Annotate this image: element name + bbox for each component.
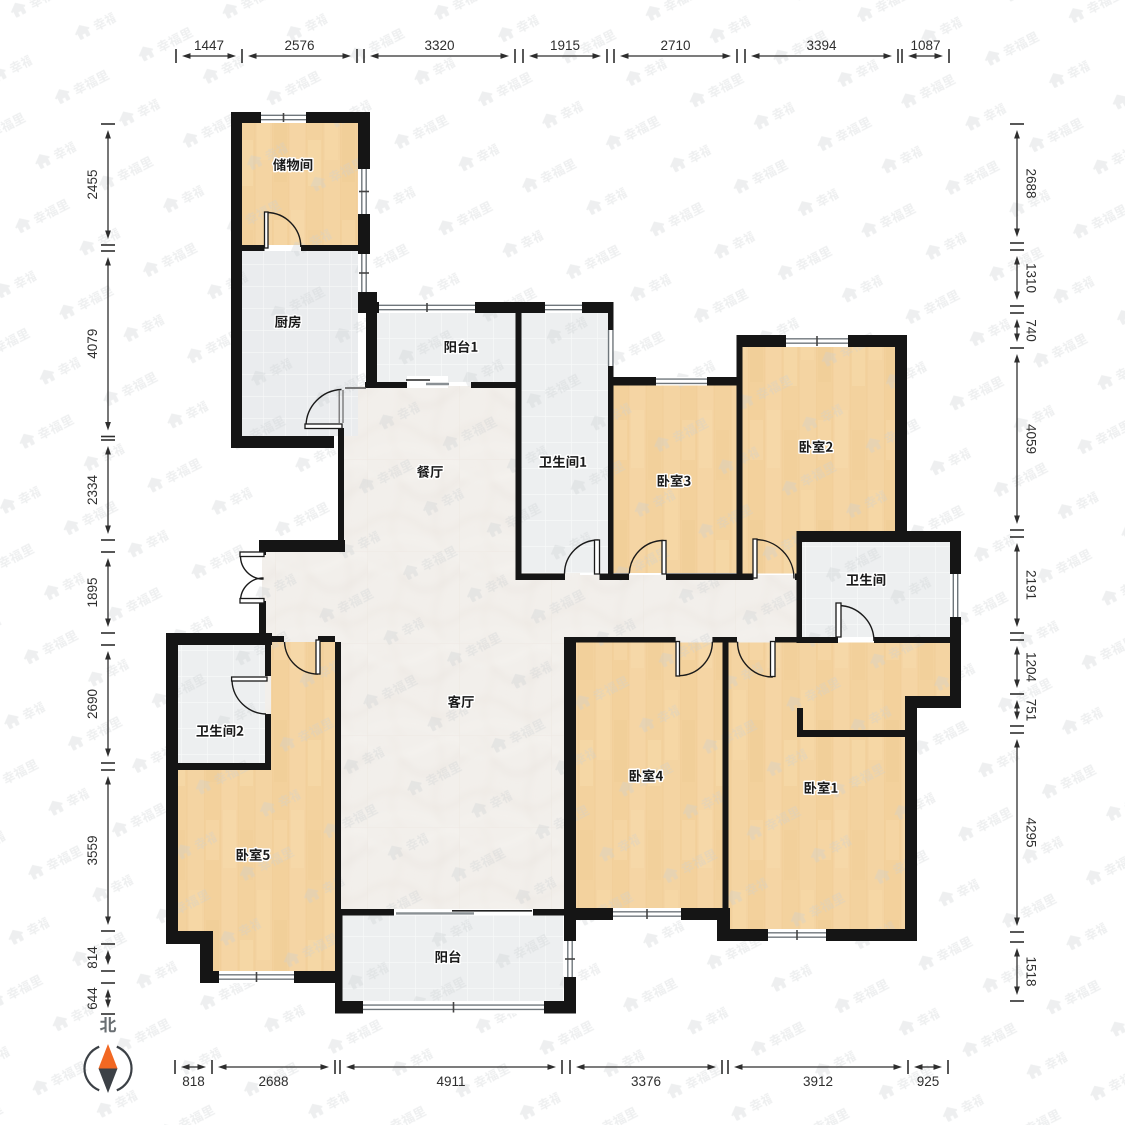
svg-text:4295: 4295 xyxy=(1024,817,1039,847)
svg-text:2690: 2690 xyxy=(85,689,100,719)
svg-text:2710: 2710 xyxy=(660,38,690,53)
svg-text:2688: 2688 xyxy=(258,1074,288,1089)
svg-text:3376: 3376 xyxy=(631,1074,661,1089)
svg-text:751: 751 xyxy=(1024,699,1039,722)
svg-text:2455: 2455 xyxy=(85,169,100,199)
svg-text:1204: 1204 xyxy=(1024,652,1039,683)
svg-text:1915: 1915 xyxy=(550,38,580,53)
svg-text:925: 925 xyxy=(917,1074,940,1089)
svg-text:2334: 2334 xyxy=(85,474,100,505)
svg-text:740: 740 xyxy=(1024,319,1039,342)
svg-text:3559: 3559 xyxy=(85,835,100,865)
svg-text:1310: 1310 xyxy=(1024,263,1039,293)
svg-text:1895: 1895 xyxy=(85,577,100,607)
svg-text:3394: 3394 xyxy=(806,38,837,53)
svg-text:2576: 2576 xyxy=(284,38,314,53)
svg-text:3912: 3912 xyxy=(803,1074,833,1089)
svg-text:3320: 3320 xyxy=(424,38,454,53)
svg-text:1447: 1447 xyxy=(194,38,224,53)
svg-text:644: 644 xyxy=(85,987,100,1010)
svg-text:2191: 2191 xyxy=(1024,570,1039,600)
svg-text:4911: 4911 xyxy=(436,1074,465,1089)
svg-text:4079: 4079 xyxy=(85,329,100,359)
svg-text:1518: 1518 xyxy=(1024,956,1039,986)
svg-text:2688: 2688 xyxy=(1024,168,1039,198)
svg-text:818: 818 xyxy=(182,1074,205,1089)
svg-text:4059: 4059 xyxy=(1024,424,1039,454)
svg-text:814: 814 xyxy=(85,946,100,969)
svg-text:1087: 1087 xyxy=(910,38,940,53)
